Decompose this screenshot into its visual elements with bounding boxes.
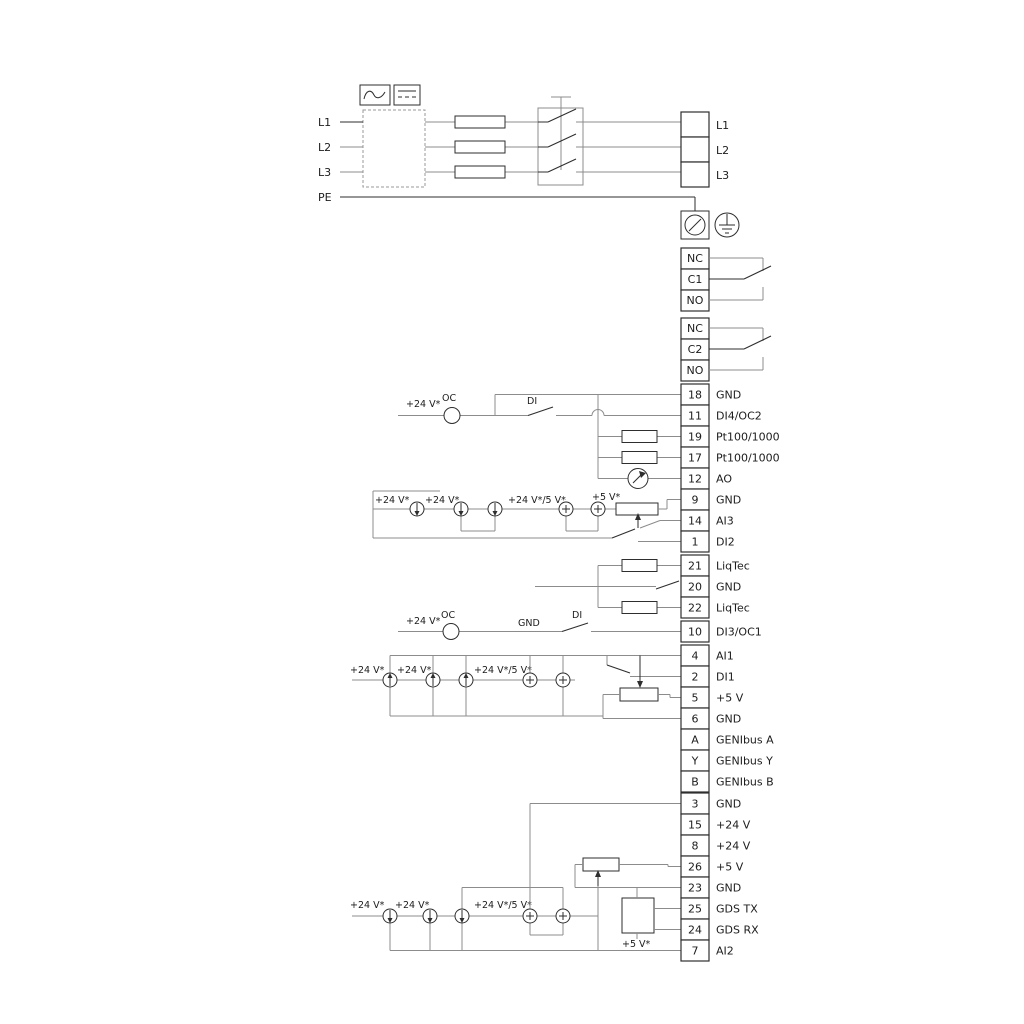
svg-text:GND: GND bbox=[716, 713, 741, 726]
svg-text:15: 15 bbox=[688, 819, 702, 832]
svg-text:A: A bbox=[691, 734, 699, 747]
output-label-l3: L3 bbox=[716, 169, 729, 182]
open-collector-icon bbox=[444, 408, 460, 424]
relay2-nc: NC bbox=[687, 322, 703, 335]
output-label-l2: L2 bbox=[716, 144, 729, 157]
svg-text:1: 1 bbox=[692, 536, 699, 549]
potentiometer-icon bbox=[583, 858, 619, 871]
relay1-nc: NC bbox=[687, 252, 703, 265]
canvas-background bbox=[0, 0, 1024, 1024]
ac-icon bbox=[360, 85, 390, 105]
plus24-label: +24 V* bbox=[425, 495, 460, 506]
svg-text:6: 6 bbox=[692, 713, 699, 726]
svg-text:11: 11 bbox=[688, 410, 702, 423]
svg-text:AI2: AI2 bbox=[716, 945, 734, 958]
svg-text:GND: GND bbox=[716, 494, 741, 507]
svg-text:3: 3 bbox=[692, 798, 699, 811]
ground-screw-icon bbox=[681, 211, 709, 239]
input-label-l2: L2 bbox=[318, 141, 331, 154]
svg-text:GND: GND bbox=[716, 798, 741, 811]
svg-text:14: 14 bbox=[688, 515, 702, 528]
svg-text:Y: Y bbox=[691, 755, 699, 768]
plus24-label: +24 V* bbox=[395, 900, 430, 911]
svg-text:LiqTec: LiqTec bbox=[716, 560, 750, 573]
pt100-resistor-icon bbox=[622, 431, 657, 443]
plus24-label: +24 V* bbox=[406, 399, 441, 410]
fuse-l1 bbox=[455, 116, 505, 128]
svg-text:GND: GND bbox=[716, 581, 741, 594]
svg-text:GENIbus B: GENIbus B bbox=[716, 776, 774, 789]
wiring-diagram: L1 L2 L3 PE bbox=[0, 0, 1024, 1024]
svg-text:22: 22 bbox=[688, 602, 702, 615]
input-label-pe: PE bbox=[318, 191, 332, 204]
svg-text:+5 V: +5 V bbox=[716, 861, 744, 874]
svg-text:+24 V: +24 V bbox=[716, 840, 751, 853]
svg-text:18: 18 bbox=[688, 389, 702, 402]
plus24-label: +24 V* bbox=[350, 665, 385, 676]
oc-label: OC bbox=[442, 393, 456, 404]
oc-label: OC bbox=[441, 610, 455, 621]
output-label-l1: L1 bbox=[716, 119, 729, 132]
svg-text:DI4/OC2: DI4/OC2 bbox=[716, 410, 762, 423]
potentiometer-icon bbox=[620, 688, 658, 701]
svg-text:20: 20 bbox=[688, 581, 702, 594]
svg-text:2: 2 bbox=[692, 671, 699, 684]
power-terminal-block: L1 L2 L3 bbox=[681, 112, 729, 187]
liqtec-sensor-icon bbox=[622, 560, 657, 572]
svg-text:DI2: DI2 bbox=[716, 536, 735, 549]
svg-text:17: 17 bbox=[688, 452, 702, 465]
svg-text:GND: GND bbox=[716, 389, 741, 402]
plus24-5v-label: +24 V*/5 V* bbox=[474, 900, 532, 911]
relay2-c2: C2 bbox=[688, 343, 703, 356]
earth-icon bbox=[715, 213, 739, 237]
relay2-no: NO bbox=[687, 364, 704, 377]
svg-text:DI3/OC1: DI3/OC1 bbox=[716, 626, 762, 639]
potentiometer-icon bbox=[616, 503, 658, 515]
fuse-l2 bbox=[455, 141, 505, 153]
svg-text:GENIbus A: GENIbus A bbox=[716, 734, 774, 747]
open-collector-icon bbox=[443, 624, 459, 640]
svg-text:AO: AO bbox=[716, 473, 732, 486]
plus24-5v-label: +24 V*/5 V* bbox=[474, 665, 532, 676]
relay1-no: NO bbox=[687, 294, 704, 307]
svg-text:LiqTec: LiqTec bbox=[716, 602, 750, 615]
relay1-c1: C1 bbox=[688, 273, 703, 286]
svg-text:GND: GND bbox=[716, 882, 741, 895]
plus24-label: +24 V* bbox=[406, 616, 441, 627]
input-label-l3: L3 bbox=[318, 166, 331, 179]
svg-text:24: 24 bbox=[688, 924, 702, 937]
plus24-label: +24 V* bbox=[397, 665, 432, 676]
svg-text:DI1: DI1 bbox=[716, 671, 735, 684]
gnd-label: GND bbox=[518, 618, 540, 629]
svg-text:Pt100/1000: Pt100/1000 bbox=[716, 431, 780, 444]
svg-text:GDS RX: GDS RX bbox=[716, 924, 759, 937]
svg-text:GENIbus Y: GENIbus Y bbox=[716, 755, 773, 768]
plus5-label: +5 V* bbox=[592, 492, 621, 503]
svg-text:8: 8 bbox=[692, 840, 699, 853]
input-label-l1: L1 bbox=[318, 116, 331, 129]
svg-text:GDS TX: GDS TX bbox=[716, 903, 758, 916]
svg-text:25: 25 bbox=[688, 903, 702, 916]
svg-text:21: 21 bbox=[688, 560, 702, 573]
svg-text:19: 19 bbox=[688, 431, 702, 444]
plus24-label: +24 V* bbox=[375, 495, 410, 506]
svg-text:23: 23 bbox=[688, 882, 702, 895]
svg-text:AI3: AI3 bbox=[716, 515, 734, 528]
di-label: DI bbox=[527, 396, 537, 407]
plus5-label: +5 V* bbox=[622, 939, 651, 950]
liqtec-sensor-icon bbox=[622, 602, 657, 614]
svg-text:10: 10 bbox=[688, 626, 702, 639]
di-label: DI bbox=[572, 610, 582, 621]
pt100-resistor-icon bbox=[622, 452, 657, 464]
svg-text:Pt100/1000: Pt100/1000 bbox=[716, 452, 780, 465]
svg-text:9: 9 bbox=[692, 494, 699, 507]
svg-text:+5 V: +5 V bbox=[716, 692, 744, 705]
svg-text:4: 4 bbox=[692, 650, 699, 663]
svg-text:+24 V: +24 V bbox=[716, 819, 751, 832]
svg-text:12: 12 bbox=[688, 473, 702, 486]
fuse-l3 bbox=[455, 166, 505, 178]
svg-text:26: 26 bbox=[688, 861, 702, 874]
dc-icon bbox=[394, 85, 420, 105]
plus24-5v-label: +24 V*/5 V* bbox=[508, 495, 566, 506]
svg-text:B: B bbox=[691, 776, 699, 789]
svg-text:5: 5 bbox=[692, 692, 699, 705]
svg-text:AI1: AI1 bbox=[716, 650, 734, 663]
plus24-label: +24 V* bbox=[350, 900, 385, 911]
svg-text:7: 7 bbox=[692, 945, 699, 958]
terminal-strip-liqtec: 21LiqTec 20GND 22LiqTec bbox=[681, 555, 750, 618]
